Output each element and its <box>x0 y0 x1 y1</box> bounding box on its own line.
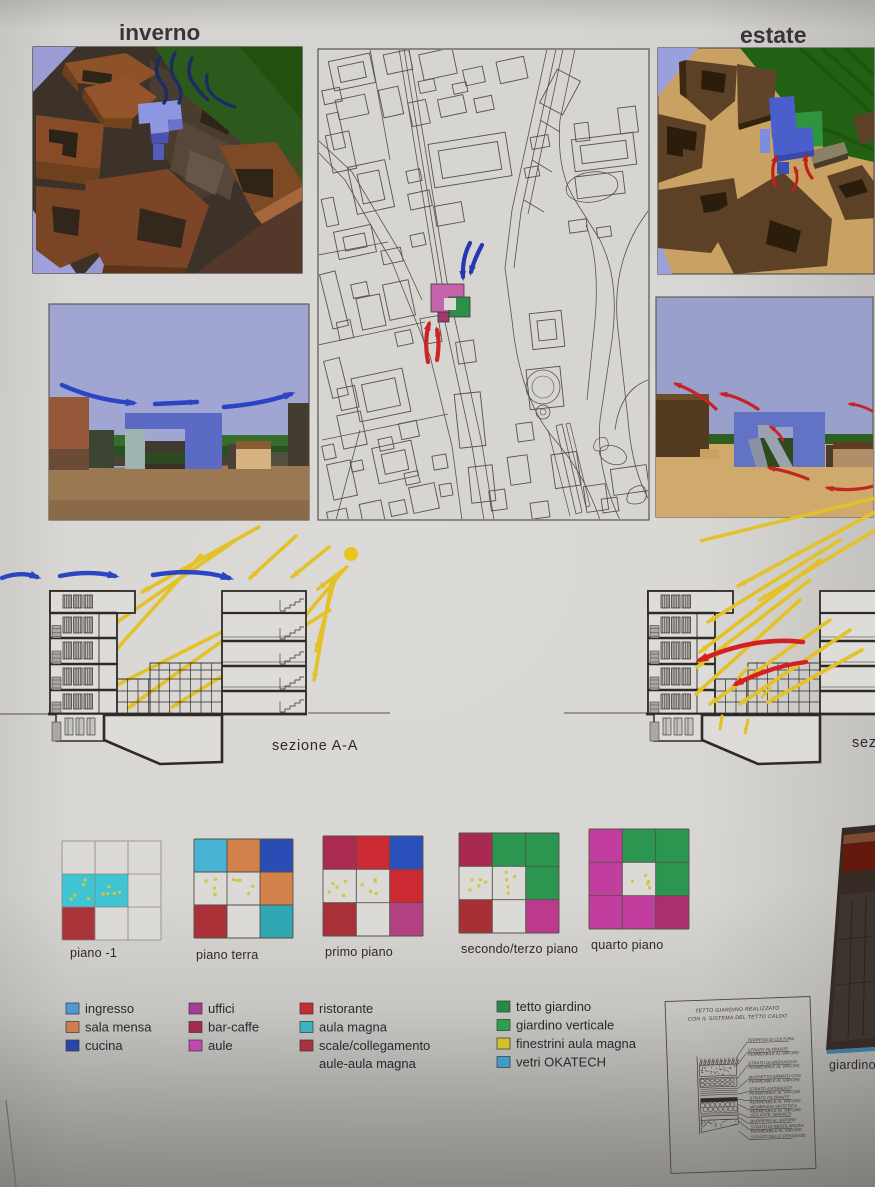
svg-text:aule-aula magna: aule-aula magna <box>319 1056 417 1071</box>
svg-text:vetri OKATECH: vetri OKATECH <box>516 1055 606 1070</box>
svg-text:aule: aule <box>208 1038 233 1053</box>
svg-text:giardino v: giardino v <box>829 1058 875 1072</box>
svg-text:uffici: uffici <box>208 1001 235 1016</box>
svg-text:sezi: sezi <box>852 735 875 751</box>
svg-text:estate: estate <box>740 22 806 48</box>
svg-text:secondo/terzo piano: secondo/terzo piano <box>461 942 578 956</box>
svg-text:primo piano: primo piano <box>325 945 393 959</box>
svg-text:inverno: inverno <box>119 20 200 45</box>
svg-text:PERMEABILE AL VAPORE: PERMEABILE AL VAPORE <box>748 1063 800 1070</box>
svg-text:scale/collegamento: scale/collegamento <box>319 1038 430 1053</box>
svg-text:ristorante: ristorante <box>319 1001 373 1016</box>
svg-text:tetto giardino: tetto giardino <box>516 999 591 1014</box>
svg-text:aula magna: aula magna <box>319 1020 388 1035</box>
svg-text:TERRENO DI COLTURA: TERRENO DI COLTURA <box>747 1036 794 1043</box>
svg-text:piano terra: piano terra <box>196 948 258 962</box>
svg-text:STRATO DELLE PENDENZE: STRATO DELLE PENDENZE <box>751 1133 806 1140</box>
svg-text:PERMEABILE AL VAPORE: PERMEABILE AL VAPORE <box>748 1050 800 1057</box>
svg-text:ingresso: ingresso <box>85 1001 134 1016</box>
svg-text:sala mensa: sala mensa <box>85 1020 152 1035</box>
svg-text:finestrini aula magna: finestrini aula magna <box>516 1036 637 1051</box>
svg-text:bar-caffe: bar-caffe <box>208 1020 259 1035</box>
svg-text:CON IL SISTEMA DEL TETTO CALDO: CON IL SISTEMA DEL TETTO CALDO <box>688 1013 787 1022</box>
svg-text:piano -1: piano -1 <box>70 946 117 960</box>
svg-text:cucina: cucina <box>85 1038 123 1053</box>
svg-text:sezione A-A: sezione A-A <box>272 738 358 754</box>
svg-text:giardino verticale: giardino verticale <box>516 1018 614 1033</box>
svg-text:quarto piano: quarto piano <box>591 938 663 952</box>
svg-text:PERMEABILE AL VAPORE: PERMEABILE AL VAPORE <box>749 1077 801 1084</box>
